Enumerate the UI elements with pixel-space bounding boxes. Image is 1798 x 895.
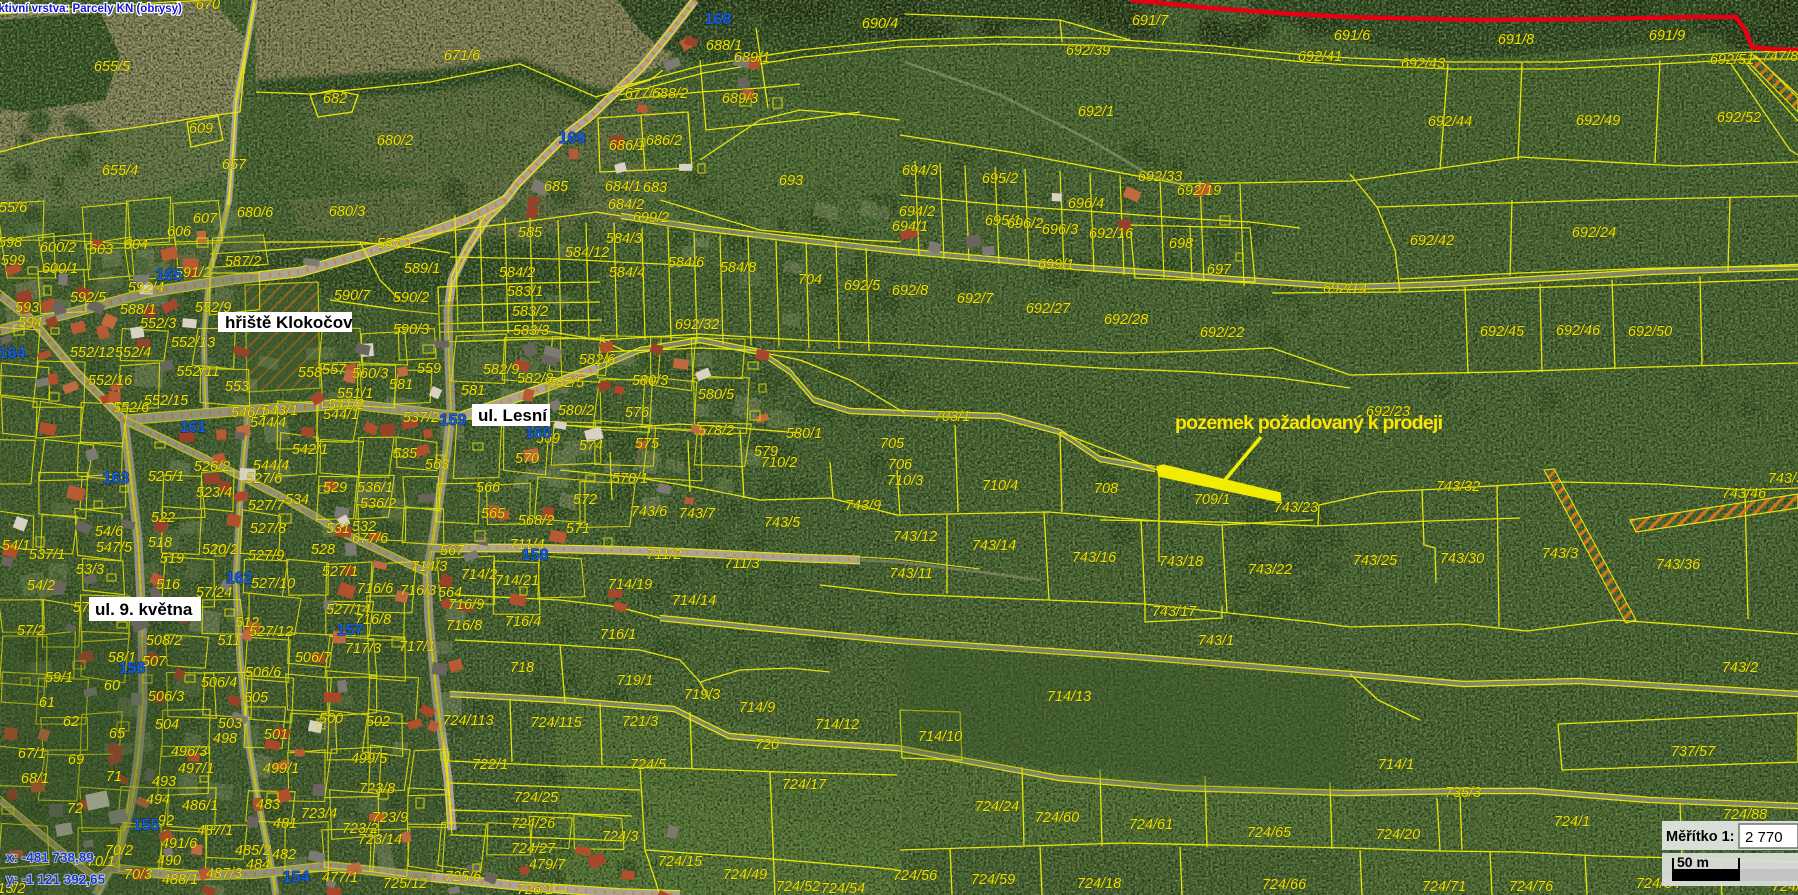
svg-text:708: 708	[1094, 481, 1118, 497]
svg-text:500: 500	[319, 711, 343, 727]
svg-text:587/2: 587/2	[225, 254, 261, 270]
svg-text:160: 160	[525, 425, 552, 442]
svg-text:527/7: 527/7	[248, 498, 285, 514]
svg-text:677/6: 677/6	[352, 531, 389, 547]
svg-text:537/1: 537/1	[29, 547, 65, 563]
svg-text:743/7: 743/7	[679, 506, 716, 522]
svg-text:486/1: 486/1	[182, 798, 218, 814]
svg-text:ul. 9. května: ul. 9. května	[95, 600, 193, 619]
svg-text:714/10: 714/10	[918, 729, 962, 745]
svg-text:717/1: 717/1	[399, 639, 435, 655]
svg-text:523/4: 523/4	[196, 485, 232, 501]
svg-text:694/2: 694/2	[899, 204, 935, 220]
svg-text:698: 698	[1169, 236, 1193, 252]
svg-text:505: 505	[244, 690, 269, 706]
svg-text:580/3: 580/3	[632, 373, 668, 389]
svg-text:582/9: 582/9	[483, 362, 519, 378]
svg-text:503: 503	[218, 716, 242, 732]
svg-text:2 770: 2 770	[1745, 829, 1783, 846]
svg-text:61: 61	[39, 695, 55, 711]
svg-text:692/46: 692/46	[1556, 323, 1601, 339]
svg-text:724/56: 724/56	[893, 868, 938, 884]
svg-text:529: 529	[323, 480, 347, 496]
svg-text:724/60: 724/60	[1035, 810, 1079, 826]
svg-text:723/2: 723/2	[342, 821, 378, 837]
svg-text:70/3: 70/3	[124, 867, 152, 883]
svg-text:527/10: 527/10	[251, 576, 295, 592]
svg-text:705: 705	[880, 436, 905, 452]
svg-text:724/5: 724/5	[630, 757, 667, 773]
svg-text:161: 161	[180, 419, 207, 436]
svg-text:692/39: 692/39	[1066, 43, 1110, 59]
svg-text:710/2: 710/2	[761, 455, 797, 471]
svg-text:709/1: 709/1	[1194, 492, 1230, 508]
svg-text:743/33: 743/33	[1768, 471, 1798, 487]
svg-text:hřiště Klokočov: hřiště Klokočov	[225, 313, 353, 332]
svg-text:711/2: 711/2	[646, 547, 681, 563]
svg-text:692/24: 692/24	[1572, 225, 1616, 241]
svg-text:584/2: 584/2	[499, 265, 535, 281]
svg-text:552/4: 552/4	[115, 345, 151, 361]
svg-text:574: 574	[579, 438, 603, 454]
svg-text:685: 685	[544, 179, 569, 195]
svg-text:688/2: 688/2	[652, 86, 688, 102]
svg-text:680/6: 680/6	[237, 205, 274, 221]
svg-text:487/3: 487/3	[206, 866, 242, 882]
svg-text:720: 720	[755, 737, 779, 753]
svg-text:657: 657	[222, 157, 247, 173]
svg-text:743/32: 743/32	[1436, 479, 1480, 495]
svg-text:542/1: 542/1	[292, 442, 328, 458]
svg-text:558: 558	[298, 365, 322, 381]
svg-text:92: 92	[158, 813, 174, 829]
svg-text:724/52: 724/52	[776, 879, 820, 895]
svg-text:716/1: 716/1	[600, 627, 636, 643]
svg-text:716/8: 716/8	[446, 618, 482, 634]
svg-text:743/22: 743/22	[1248, 562, 1292, 578]
svg-text:655/4: 655/4	[102, 163, 138, 179]
svg-text:743/23: 743/23	[1274, 500, 1318, 516]
svg-text:743/9: 743/9	[845, 498, 881, 514]
svg-text:743/5: 743/5	[764, 515, 801, 531]
svg-text:155: 155	[133, 817, 160, 834]
svg-text:57/2: 57/2	[17, 623, 45, 639]
svg-text:490: 490	[157, 853, 181, 869]
svg-text:557: 557	[322, 362, 347, 378]
svg-text:724/113: 724/113	[442, 713, 493, 729]
svg-text:536/1: 536/1	[357, 480, 393, 496]
svg-text:592/5: 592/5	[70, 290, 107, 306]
svg-text:593: 593	[15, 300, 39, 316]
svg-text:724/49: 724/49	[723, 867, 767, 883]
svg-text:494: 494	[146, 792, 170, 808]
svg-text:714/12: 714/12	[815, 717, 859, 733]
svg-text:584/3: 584/3	[606, 231, 642, 247]
svg-text:724/25: 724/25	[514, 790, 559, 806]
svg-text:487/1: 487/1	[197, 823, 233, 839]
svg-text:483: 483	[256, 797, 280, 813]
svg-text:692/16: 692/16	[1089, 226, 1134, 242]
svg-text:694/3: 694/3	[902, 163, 938, 179]
svg-text:x: -481 738,89: x: -481 738,89	[6, 850, 94, 865]
svg-text:547/5: 547/5	[96, 540, 133, 556]
svg-text:743/30: 743/30	[1440, 551, 1484, 567]
svg-text:724/66: 724/66	[1262, 877, 1307, 893]
svg-text:692/1: 692/1	[1078, 104, 1114, 120]
svg-text:692/19: 692/19	[1177, 183, 1221, 199]
svg-text:477/1: 477/1	[322, 870, 358, 886]
svg-text:69: 69	[68, 752, 84, 768]
svg-text:743/18: 743/18	[1159, 554, 1203, 570]
svg-text:aktivní vrstva: Parcely KN (ob: aktivní vrstva: Parcely KN (obrysy)	[0, 3, 182, 15]
svg-text:714/1: 714/1	[1378, 757, 1414, 773]
svg-text:578/1: 578/1	[612, 471, 648, 487]
svg-text:691/7: 691/7	[1132, 13, 1169, 29]
svg-text:716/4: 716/4	[505, 614, 541, 630]
svg-text:743/25: 743/25	[1353, 553, 1398, 569]
svg-text:699/2: 699/2	[633, 210, 669, 226]
svg-text:606: 606	[167, 224, 192, 240]
svg-text:552/13: 552/13	[171, 335, 215, 351]
svg-text:684/1: 684/1	[605, 179, 641, 195]
svg-text:519: 519	[160, 551, 184, 567]
svg-text:714/9: 714/9	[739, 700, 775, 716]
svg-text:536/2: 536/2	[360, 496, 396, 512]
svg-text:655/6: 655/6	[0, 200, 28, 216]
svg-text:743/3: 743/3	[1542, 546, 1578, 562]
svg-text:743/1: 743/1	[1198, 633, 1234, 649]
svg-text:743/2: 743/2	[1722, 660, 1758, 676]
svg-text:598: 598	[0, 235, 22, 251]
svg-text:493: 493	[152, 774, 176, 790]
svg-text:581: 581	[389, 377, 413, 393]
svg-text:590/2: 590/2	[393, 290, 429, 306]
svg-text:686/2: 686/2	[646, 133, 682, 149]
svg-text:570: 570	[515, 451, 539, 467]
svg-text:531: 531	[326, 521, 350, 537]
svg-text:587/1: 587/1	[377, 236, 413, 252]
svg-text:584/12: 584/12	[565, 245, 609, 261]
svg-text:590/3: 590/3	[393, 322, 429, 338]
svg-text:522: 522	[151, 510, 175, 526]
svg-text:504: 504	[155, 717, 179, 733]
svg-text:482: 482	[272, 847, 296, 863]
svg-text:537/2: 537/2	[403, 410, 439, 426]
svg-text:682: 682	[323, 91, 347, 107]
svg-text:71: 71	[106, 769, 122, 785]
svg-text:724/76: 724/76	[1509, 879, 1554, 895]
svg-text:527/1: 527/1	[322, 564, 358, 580]
svg-text:507: 507	[142, 654, 167, 670]
svg-text:583/2: 583/2	[512, 304, 548, 320]
svg-text:584/8: 584/8	[720, 260, 756, 276]
svg-text:53/3: 53/3	[76, 562, 104, 578]
svg-text:706: 706	[888, 457, 913, 473]
svg-text:710/3: 710/3	[887, 473, 923, 489]
svg-text:594: 594	[18, 315, 42, 331]
svg-text:582/6: 582/6	[579, 352, 616, 368]
svg-text:565: 565	[481, 506, 506, 522]
svg-text:743/17: 743/17	[1152, 604, 1197, 620]
svg-text:724/61: 724/61	[1129, 817, 1173, 833]
svg-text:162: 162	[226, 570, 253, 587]
svg-text:165: 165	[156, 267, 183, 284]
svg-text:724/26: 724/26	[511, 816, 556, 832]
svg-text:575: 575	[635, 436, 660, 452]
svg-text:568/2: 568/2	[518, 513, 554, 529]
svg-text:604: 604	[124, 237, 148, 253]
svg-text:484: 484	[246, 857, 270, 873]
svg-text:735/3: 735/3	[1445, 785, 1481, 801]
svg-text:743/46: 743/46	[1722, 486, 1767, 502]
svg-text:689/1: 689/1	[734, 50, 770, 66]
svg-text:534: 534	[285, 492, 309, 508]
svg-text:156: 156	[119, 660, 146, 677]
svg-text:747/8: 747/8	[1762, 49, 1798, 65]
svg-text:724/54: 724/54	[821, 881, 865, 895]
svg-text:506/7: 506/7	[295, 650, 332, 666]
svg-text:564: 564	[438, 585, 462, 601]
svg-text:496/3: 496/3	[171, 744, 207, 760]
svg-text:481: 481	[273, 816, 297, 832]
svg-text:479/7: 479/7	[529, 857, 566, 873]
svg-text:716/3: 716/3	[400, 583, 436, 599]
svg-text:Měřítko 1:: Měřítko 1:	[1666, 829, 1735, 845]
svg-text:694/1: 694/1	[892, 219, 928, 235]
svg-text:692/51: 692/51	[1710, 52, 1754, 68]
svg-text:583/1: 583/1	[507, 284, 543, 300]
svg-text:544/1: 544/1	[323, 407, 359, 423]
svg-text:552/6: 552/6	[113, 400, 150, 416]
svg-text:527/9: 527/9	[248, 548, 284, 564]
svg-text:714/19: 714/19	[608, 577, 652, 593]
svg-text:714/14: 714/14	[672, 593, 716, 609]
svg-text:158: 158	[522, 547, 549, 564]
svg-text:168: 168	[705, 11, 732, 28]
svg-text:686/1: 686/1	[609, 138, 645, 154]
svg-text:535: 535	[393, 446, 418, 462]
svg-text:580/2: 580/2	[558, 403, 594, 419]
svg-text:590/7: 590/7	[334, 288, 371, 304]
svg-text:578/2: 578/2	[698, 423, 734, 439]
svg-text:pozemek požadovaný k prodeji: pozemek požadovaný k prodeji	[1175, 412, 1443, 434]
svg-text:520/2: 520/2	[202, 542, 238, 558]
svg-text:603: 603	[89, 242, 113, 258]
svg-text:692/50: 692/50	[1628, 324, 1672, 340]
svg-text:695/2: 695/2	[982, 171, 1018, 187]
svg-text:508/2: 508/2	[146, 633, 182, 649]
svg-text:506/3: 506/3	[148, 689, 184, 705]
svg-text:585: 585	[518, 225, 543, 241]
svg-text:68/1: 68/1	[21, 771, 49, 787]
svg-text:609: 609	[189, 121, 213, 137]
svg-text:723/8: 723/8	[359, 781, 395, 797]
svg-text:724/3: 724/3	[602, 829, 638, 845]
svg-text:65: 65	[109, 726, 126, 742]
svg-text:697: 697	[1207, 262, 1232, 278]
svg-text:62: 62	[63, 714, 79, 730]
svg-text:692/22: 692/22	[1200, 325, 1244, 341]
svg-text:725/12: 725/12	[383, 876, 427, 892]
svg-text:600/1: 600/1	[42, 261, 78, 277]
svg-text:607: 607	[193, 211, 218, 227]
svg-text:724/20: 724/20	[1376, 827, 1420, 843]
svg-text:689/3: 689/3	[722, 91, 758, 107]
svg-text:498: 498	[213, 731, 237, 747]
svg-text:714/21: 714/21	[495, 573, 539, 589]
svg-text:497/1: 497/1	[178, 761, 214, 777]
svg-text:743/14: 743/14	[972, 538, 1016, 554]
svg-text:516: 516	[156, 577, 181, 593]
svg-text:583/3: 583/3	[513, 323, 549, 339]
svg-text:499/5: 499/5	[351, 751, 388, 767]
svg-text:67/1: 67/1	[18, 746, 46, 762]
svg-text:692/32: 692/32	[675, 317, 719, 333]
svg-text:655/5: 655/5	[94, 59, 131, 75]
svg-text:544/4: 544/4	[250, 415, 286, 431]
svg-text:566: 566	[476, 480, 501, 496]
svg-text:599: 599	[1, 253, 25, 269]
svg-text:552/11: 552/11	[176, 364, 219, 380]
svg-text:488/1: 488/1	[162, 872, 198, 888]
svg-text:693: 693	[779, 173, 803, 189]
svg-text:72: 72	[67, 801, 83, 817]
svg-text:499/1: 499/1	[263, 761, 299, 777]
svg-text:692/7: 692/7	[957, 291, 994, 307]
svg-text:743/11: 743/11	[889, 566, 932, 582]
svg-text:527/8: 527/8	[250, 521, 286, 537]
svg-text:724/18: 724/18	[1077, 876, 1121, 892]
svg-text:54/1: 54/1	[2, 538, 30, 554]
svg-text:528: 528	[311, 542, 335, 558]
svg-text:163: 163	[103, 470, 130, 487]
svg-text:723/4: 723/4	[301, 806, 337, 822]
svg-text:683: 683	[643, 180, 667, 196]
svg-text:584/4: 584/4	[609, 265, 645, 281]
svg-text:692/8: 692/8	[892, 283, 928, 299]
svg-text:552/3: 552/3	[140, 316, 176, 332]
svg-text:743/12: 743/12	[893, 529, 937, 545]
svg-text:724/88: 724/88	[1723, 807, 1767, 823]
svg-text:527/12: 527/12	[249, 624, 293, 640]
svg-text:680/3: 680/3	[329, 204, 365, 220]
svg-text:671/6: 671/6	[444, 48, 481, 64]
svg-text:724/24: 724/24	[975, 799, 1019, 815]
svg-text:704: 704	[798, 272, 822, 288]
svg-text:159: 159	[440, 412, 467, 429]
svg-text:563: 563	[425, 457, 449, 473]
svg-text:724/1: 724/1	[1554, 814, 1590, 830]
svg-text:696/3: 696/3	[1042, 222, 1078, 238]
svg-text:719/1: 719/1	[617, 673, 653, 689]
svg-text:169: 169	[559, 130, 586, 147]
svg-text:692/49: 692/49	[1576, 113, 1620, 129]
svg-text:724/59: 724/59	[971, 872, 1015, 888]
svg-text:724/15: 724/15	[658, 854, 703, 870]
svg-text:600/2: 600/2	[40, 240, 76, 256]
svg-text:743/16: 743/16	[1072, 550, 1117, 566]
svg-text:581: 581	[461, 383, 485, 399]
svg-text:725/6: 725/6	[445, 869, 482, 885]
svg-text:717/3: 717/3	[345, 641, 381, 657]
svg-text:692/43: 692/43	[1401, 56, 1445, 72]
svg-text:691/6: 691/6	[1334, 28, 1371, 44]
svg-text:559: 559	[417, 361, 441, 377]
svg-text:692/33: 692/33	[1138, 169, 1182, 185]
svg-text:692/52: 692/52	[1717, 110, 1761, 126]
svg-text:691/8: 691/8	[1498, 32, 1534, 48]
svg-text:54/2: 54/2	[27, 578, 55, 594]
svg-text:576: 576	[625, 405, 650, 421]
svg-text:719/3: 719/3	[684, 687, 720, 703]
svg-text:692/45: 692/45	[1480, 324, 1525, 340]
svg-text:552/15: 552/15	[144, 393, 189, 409]
svg-text:714/3: 714/3	[411, 559, 447, 575]
svg-text:670: 670	[196, 0, 220, 13]
svg-text:714/13: 714/13	[1047, 689, 1091, 705]
svg-text:724/17: 724/17	[782, 777, 827, 793]
svg-text:589/1: 589/1	[404, 261, 440, 277]
svg-text:525/1: 525/1	[148, 469, 184, 485]
svg-text:560/3: 560/3	[352, 366, 388, 382]
svg-text:y: -1 121 392,65: y: -1 121 392,65	[6, 872, 106, 887]
svg-text:506/4: 506/4	[201, 675, 237, 691]
svg-text:552/12: 552/12	[70, 345, 114, 361]
svg-text:580/5: 580/5	[698, 387, 735, 403]
svg-text:692/42: 692/42	[1410, 233, 1454, 249]
svg-text:60: 60	[104, 678, 120, 694]
svg-text:584/6: 584/6	[668, 255, 705, 271]
svg-text:703/1: 703/1	[934, 409, 970, 425]
svg-text:572: 572	[573, 492, 597, 508]
svg-text:571: 571	[566, 521, 590, 537]
svg-text:157: 157	[337, 622, 364, 639]
svg-text:699/1: 699/1	[1038, 257, 1074, 273]
svg-text:491/6: 491/6	[161, 836, 198, 852]
svg-text:724/115: 724/115	[530, 715, 582, 731]
svg-text:526/2: 526/2	[194, 459, 230, 475]
svg-text:696/4: 696/4	[1068, 196, 1104, 212]
svg-text:743/36: 743/36	[1656, 557, 1701, 573]
svg-text:154: 154	[283, 869, 310, 886]
svg-text:582/5: 582/5	[548, 375, 585, 391]
svg-text:502: 502	[366, 714, 390, 730]
svg-text:710/4: 710/4	[982, 478, 1018, 494]
svg-text:54/6: 54/6	[95, 524, 124, 540]
svg-text:164: 164	[0, 345, 25, 362]
svg-text:ul. Lesní: ul. Lesní	[478, 406, 548, 425]
svg-text:692/28: 692/28	[1104, 312, 1148, 328]
svg-text:692/5: 692/5	[844, 278, 881, 294]
svg-text:680/2: 680/2	[377, 133, 413, 149]
svg-text:711/3: 711/3	[724, 556, 759, 572]
svg-text:724/65: 724/65	[1247, 825, 1292, 841]
svg-text:553: 553	[225, 379, 249, 395]
svg-text:743/6: 743/6	[631, 504, 668, 520]
svg-text:580/1: 580/1	[786, 426, 822, 442]
svg-text:724/27: 724/27	[511, 841, 556, 857]
svg-text:726/1: 726/1	[517, 882, 553, 895]
svg-text:59/1: 59/1	[45, 670, 73, 686]
svg-text:692/14: 692/14	[1323, 281, 1367, 297]
svg-text:722/1: 722/1	[472, 757, 508, 773]
svg-text:718: 718	[510, 660, 534, 676]
svg-text:50 m: 50 m	[1677, 854, 1709, 870]
svg-text:506/6: 506/6	[245, 665, 282, 681]
svg-text:691/9: 691/9	[1649, 28, 1685, 44]
svg-text:690/4: 690/4	[862, 16, 898, 32]
svg-text:57/24: 57/24	[196, 585, 232, 601]
